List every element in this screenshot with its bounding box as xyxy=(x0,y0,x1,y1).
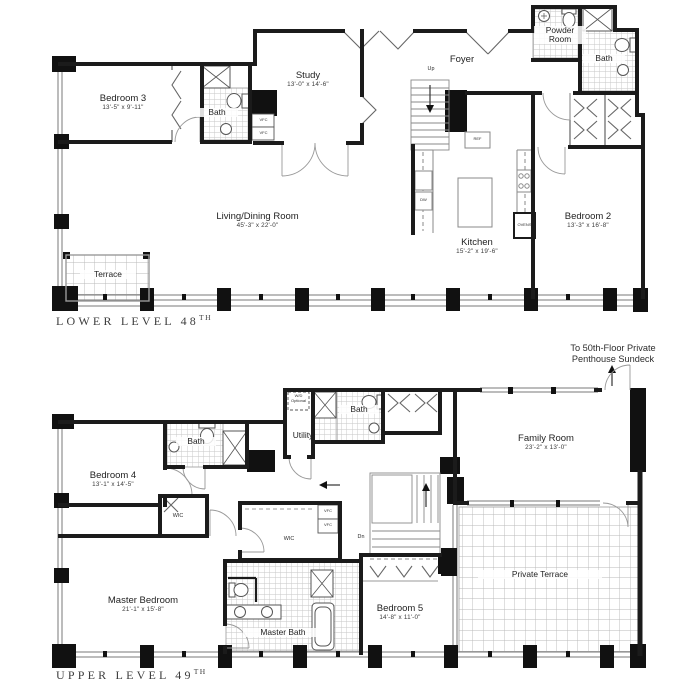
room-name: Kitchen xyxy=(427,238,527,248)
room-label-bedroom-4: Bedroom 4 13'-1" x 14'-5" xyxy=(63,471,163,489)
room-dims: 14'-8" x 11'-0" xyxy=(350,615,450,622)
upper-shaft xyxy=(247,450,275,472)
room-label-family-room: Family Room 23'-2" x 13'-0" xyxy=(496,434,596,452)
room-name: Bedroom 5 xyxy=(350,604,450,614)
room-label-foyer: Foyer xyxy=(427,55,497,65)
room-label-private-terrace: Private Terrace xyxy=(478,570,602,579)
room-name: Study xyxy=(258,71,358,81)
vfc-label-3: VFC xyxy=(319,509,337,514)
room-name: Private Terrace xyxy=(478,570,602,579)
sink-lower-bath2 xyxy=(618,65,629,76)
room-label-lower-bath: Bath xyxy=(196,108,238,117)
room-dims: 13'-1" x 14'-5" xyxy=(63,482,163,489)
room-name: Foyer xyxy=(427,55,497,65)
sink-master-1 xyxy=(235,607,246,618)
upper-corner-column xyxy=(630,388,646,472)
room-label-upper-bath-2: Bath xyxy=(339,405,379,414)
toilet-master-bath xyxy=(234,584,248,597)
room-dims: 13'-5" x 9'-11" xyxy=(63,105,183,112)
room-label-lower-bath-2: Bath xyxy=(583,54,625,63)
room-name: Bedroom 2 xyxy=(538,212,638,222)
room-label-study: Study 13'-0" x 14'-6" xyxy=(258,71,358,89)
room-label-master-bath: Master Bath xyxy=(243,628,323,637)
lower-level-title: LOWER LEVEL 48TH xyxy=(56,314,212,328)
upper-bath2-floor xyxy=(337,390,383,442)
stair-dn-label: Dn xyxy=(352,535,370,541)
room-name: Bedroom 3 xyxy=(63,94,183,104)
toilet-lower-bath2 xyxy=(615,39,629,52)
ovens-label: OVENS xyxy=(514,223,535,228)
room-label-bedroom-2: Bedroom 2 13'-3" x 16'-8" xyxy=(538,212,638,230)
sundeck-note-line-2: Penthouse Sundeck xyxy=(547,354,679,364)
hallway-arrow xyxy=(319,481,340,489)
room-label-utility: Utility xyxy=(281,431,325,440)
toilet-lower-bath xyxy=(227,94,241,109)
kitchen-island xyxy=(458,178,492,227)
cooktop-box xyxy=(517,170,531,192)
washer-dryer-label: W/D Optional xyxy=(287,394,310,403)
room-name: Bath xyxy=(176,437,216,446)
room-name: Bath xyxy=(339,405,379,414)
room-name: Terrace xyxy=(80,270,136,279)
wic-label-1: WIC xyxy=(166,514,190,520)
room-label-upper-bath: Bath xyxy=(176,437,216,446)
room-dims: 13'-3" x 16'-8" xyxy=(538,223,638,230)
wic-label-2: WIC xyxy=(277,537,301,543)
room-name: Master Bath xyxy=(243,628,323,637)
room-name: Bedroom 4 xyxy=(63,471,163,481)
room-dims: 23'-2" x 13'-0" xyxy=(496,445,596,452)
vfc-label-2: VFC xyxy=(254,131,273,136)
room-label-bedroom-3: Bedroom 3 13'-5" x 9'-11" xyxy=(63,94,183,112)
lower-stair-shaft xyxy=(445,90,467,132)
room-dims: 13'-0" x 14'-6" xyxy=(258,82,358,89)
room-name: Family Room xyxy=(496,434,596,444)
room-name: Powder Room xyxy=(534,26,586,44)
sundeck-note-line-1: To 50th-Floor Private xyxy=(547,343,679,353)
vfc-label-4: VFC xyxy=(319,523,337,528)
lower-stairs xyxy=(411,80,449,150)
room-label-master-bedroom: Master Bedroom 21'-1" x 15'-8" xyxy=(73,596,213,614)
room-dims: 15'-2" x 19'-6" xyxy=(427,249,527,256)
lower-hatched-floors xyxy=(66,9,637,301)
floor-plan-canvas: Bedroom 3 13'-5" x 9'-11" Bath Study 13'… xyxy=(0,0,700,696)
room-label-living-dining: Living/Dining Room 45'-3" x 22'-0" xyxy=(180,212,335,230)
room-name: Master Bedroom xyxy=(73,596,213,606)
sink-upper-bath2 xyxy=(369,423,379,433)
lower-level-plan xyxy=(52,7,648,312)
sink-master-2 xyxy=(262,607,273,618)
room-name: Utility xyxy=(281,431,325,440)
room-dims: 45'-3" x 22'-0" xyxy=(180,223,335,230)
refrigerator-label: REF xyxy=(467,137,488,142)
sink-lower-bath xyxy=(221,124,232,135)
stair-up-label: Up xyxy=(420,67,442,73)
room-label-bedroom-5: Bedroom 5 14'-8" x 11'-0" xyxy=(350,604,450,622)
room-label-powder-room: Powder Room xyxy=(534,26,586,44)
room-name: Bath xyxy=(196,108,238,117)
upper-level-title: UPPER LEVEL 49TH xyxy=(56,668,207,682)
room-label-kitchen: Kitchen 15'-2" x 19'-6" xyxy=(427,238,527,256)
upper-stairs xyxy=(370,473,440,559)
vfc-label-1: VFC xyxy=(254,118,273,123)
private-terrace-floor xyxy=(459,507,638,652)
room-name: Living/Dining Room xyxy=(180,212,335,222)
upper-stair-arrow xyxy=(422,483,430,491)
room-dims: 21'-1" x 15'-8" xyxy=(73,607,213,614)
lower-shaft xyxy=(250,90,277,116)
room-name: Bath xyxy=(583,54,625,63)
dishwasher-label: DW xyxy=(415,198,432,203)
room-label-terrace: Terrace xyxy=(80,270,136,279)
